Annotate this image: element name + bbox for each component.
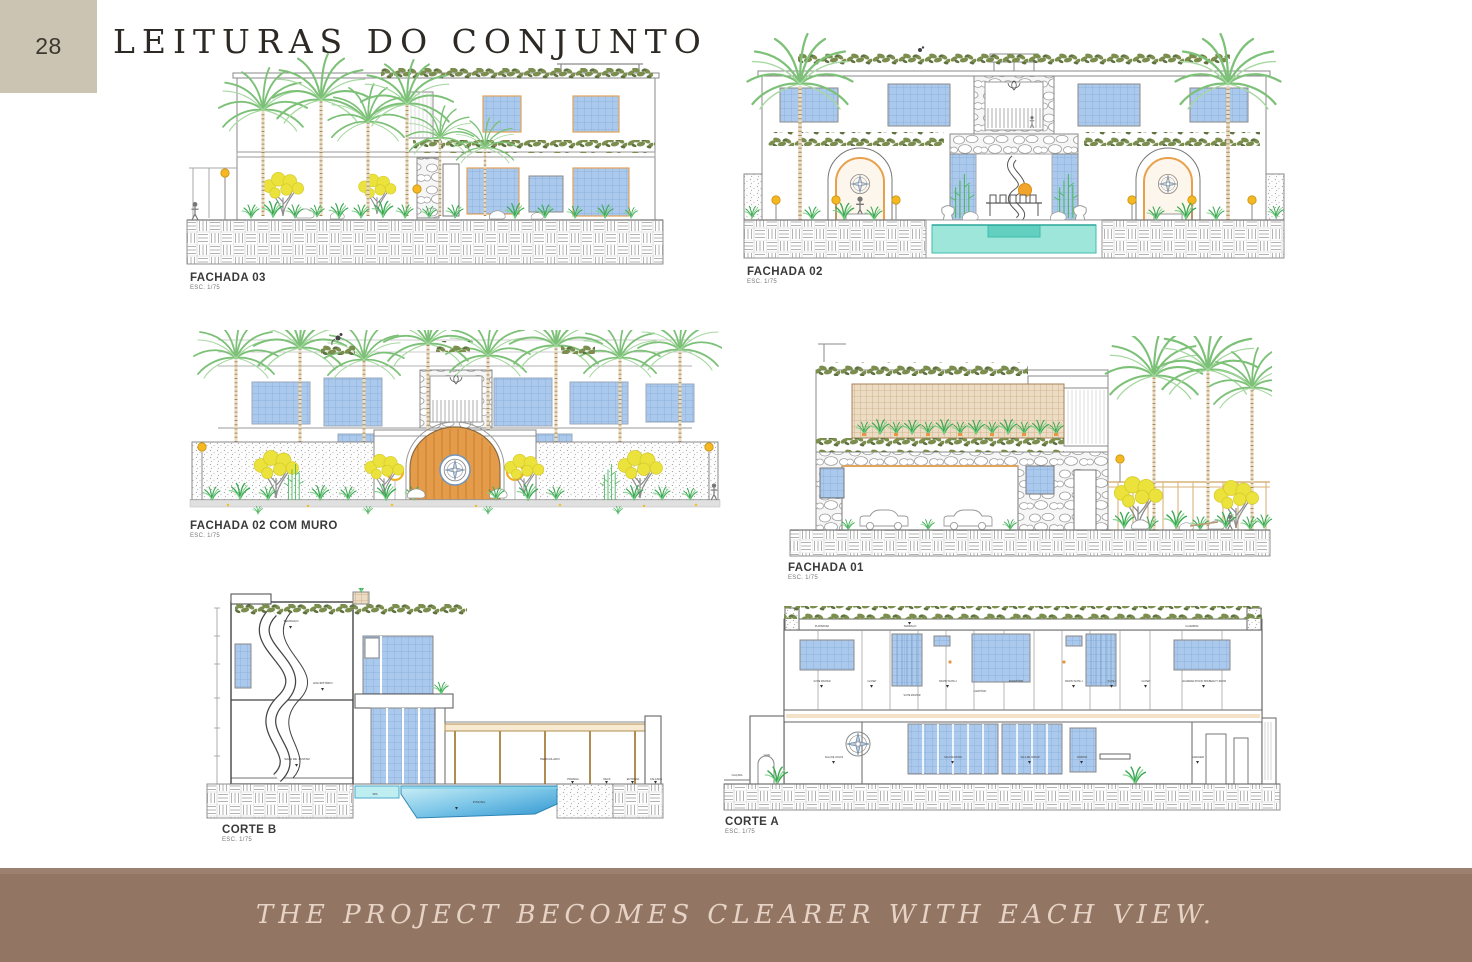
left-garland-band <box>768 132 944 146</box>
svg-text:SALA DE ESTAR: SALA DE ESTAR <box>944 756 962 759</box>
svg-text:TERRAÇO: TERRAÇO <box>283 619 299 623</box>
roof-garland <box>784 606 1262 619</box>
drawing-scale-corte-b: ESC. 1/75 <box>222 837 665 843</box>
base-wall <box>724 784 1280 810</box>
section-corte-b: TERRAÇO ESCRITÓRIO SALA DE JANTAR PERGOL… <box>205 588 665 820</box>
elevation-fachada03 <box>185 52 665 268</box>
roof-garland <box>816 362 1028 376</box>
base-wall <box>187 220 663 264</box>
panel-corte-a: PLATIBANDA TERRAÇO CLARABOIA SUITE MASTE… <box>722 598 1283 835</box>
svg-text:PERGOLADO: PERGOLADO <box>540 757 560 761</box>
svg-text:ACADEMIA STUDIO SPA/BEAUTY ROO: ACADEMIA STUDIO SPA/BEAUTY ROOM <box>1182 680 1226 683</box>
panel-fachada03: FACHADA 03 ESC. 1/75 <box>185 52 665 291</box>
planter-garland <box>816 438 1064 452</box>
panel-fachada02: FACHADA 02 ESC. 1/75 <box>742 24 1286 285</box>
elevation-fachada02 <box>742 24 1286 262</box>
elevation-fachada01 <box>788 336 1272 558</box>
svg-text:CALÇADA: CALÇADA <box>650 777 663 781</box>
ground <box>190 500 720 507</box>
svg-text:LAVATÓRIO: LAVATÓRIO <box>974 690 987 693</box>
footer-banner: THE PROJECT BECOMES CLEARER WITH EACH VI… <box>0 868 1472 962</box>
elevation-fachada02-muro <box>188 330 722 516</box>
svg-text:COZINHA: COZINHA <box>1077 756 1088 759</box>
svg-text:ESCRITÓRIO: ESCRITÓRIO <box>1009 680 1024 683</box>
drawing-scale-corte-a: ESC. 1/75 <box>725 829 1283 835</box>
pool <box>926 220 1102 258</box>
pergola <box>445 722 650 784</box>
svg-text:SALA DE JOGOS: SALA DE JOGOS <box>825 756 844 759</box>
svg-text:SALA DE JANTAR: SALA DE JANTAR <box>1021 756 1040 759</box>
svg-text:SPA: SPA <box>373 792 378 796</box>
lamp-post <box>1116 455 1124 482</box>
svg-text:SUITE MASTER: SUITE MASTER <box>904 694 921 697</box>
right-garland-band <box>1084 132 1260 146</box>
svg-text:BANHO SUITE 2: BANHO SUITE 2 <box>939 680 957 683</box>
svg-text:SUITE 1: SUITE 1 <box>1108 681 1117 683</box>
base-wall <box>790 530 1270 556</box>
yellow-trees <box>1114 477 1258 528</box>
svg-text:CLOSET: CLOSET <box>1141 681 1151 683</box>
svg-text:CLARABOIA: CLARABOIA <box>1185 625 1199 628</box>
drawing-scale-fachada02-muro: ESC. 1/75 <box>190 533 722 539</box>
drawing-title-corte-a: CORTE A <box>725 816 1283 828</box>
svg-text:DECK: DECK <box>603 777 610 781</box>
urn-left <box>942 206 955 220</box>
svg-text:CANIL: CANIL <box>764 754 771 757</box>
pool <box>355 786 557 818</box>
drawing-title-fachada02-muro: FACHADA 02 COM MURO <box>190 520 722 532</box>
svg-text:GARAGEM: GARAGEM <box>1192 756 1204 759</box>
planter-garland <box>413 140 655 153</box>
svg-text:PLATIBANDA: PLATIBANDA <box>815 625 830 628</box>
footer-quote: THE PROJECT BECOMES CLEARER WITH EACH VI… <box>256 900 1216 930</box>
panel-corte-b: TERRAÇO ESCRITÓRIO SALA DE JANTAR PERGOL… <box>205 588 665 843</box>
mid-block <box>355 636 453 784</box>
roof-garland <box>235 604 467 617</box>
drawing-title-fachada01: FACHADA 01 <box>788 562 1272 574</box>
svg-text:CLOSET: CLOSET <box>867 681 877 683</box>
page-number: 28 <box>35 33 62 60</box>
drawing-title-corte-b: CORTE B <box>222 824 665 836</box>
entry-wall <box>645 716 661 784</box>
svg-text:PISCINA: PISCINA <box>473 800 486 804</box>
page-number-box: 28 <box>0 0 97 93</box>
drawing-scale-fachada01: ESC. 1/75 <box>788 575 1272 581</box>
dimension-line <box>214 608 220 784</box>
drawing-title-fachada02: FACHADA 02 <box>747 266 1286 278</box>
svg-text:SALA DE JANTAR: SALA DE JANTAR <box>284 757 310 761</box>
roof-garland <box>798 52 1230 66</box>
drawing-scale-fachada02: ESC. 1/75 <box>747 279 1286 285</box>
svg-text:SUITE MASTER: SUITE MASTER <box>814 680 831 683</box>
section-corte-a: PLATIBANDA TERRAÇO CLARABOIA SUITE MASTE… <box>722 598 1283 812</box>
svg-text:PRAINHA: PRAINHA <box>567 777 579 781</box>
drawing-title-fachada03: FACHADA 03 <box>190 272 665 284</box>
roof-planter <box>351 588 370 604</box>
svg-text:CALÇADA: CALÇADA <box>732 774 743 777</box>
drawing-scale-fachada03: ESC. 1/75 <box>190 285 665 291</box>
urn-right <box>1074 206 1087 220</box>
panel-fachada01: FACHADA 01 ESC. 1/75 <box>788 336 1272 581</box>
svg-text:ENTRADA: ENTRADA <box>627 777 640 781</box>
svg-text:BANHO SUITE 1: BANHO SUITE 1 <box>1065 680 1083 683</box>
scale-figure <box>191 202 198 220</box>
bird <box>918 46 924 52</box>
svg-text:ESCRITÓRIO: ESCRITÓRIO <box>313 680 333 685</box>
balcony-plant <box>433 682 448 694</box>
svg-text:TERRAÇO: TERRAÇO <box>904 624 917 628</box>
panel-fachada02-muro: FACHADA 02 COM MURO ESC. 1/75 <box>188 330 722 539</box>
